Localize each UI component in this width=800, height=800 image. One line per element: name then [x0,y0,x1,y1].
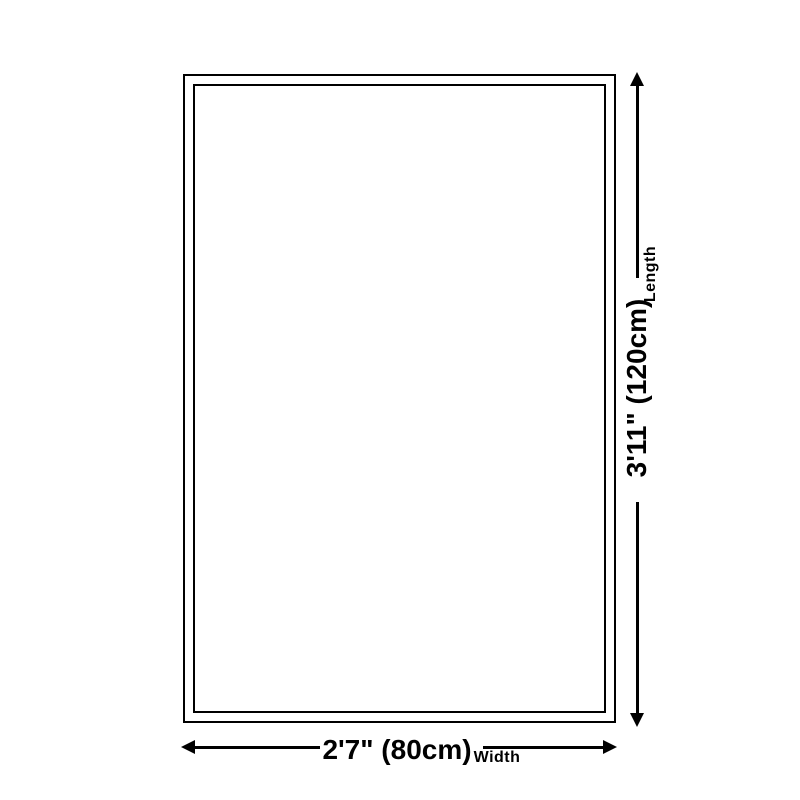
arrow-up-icon [630,72,644,86]
arrow-right-icon [603,740,617,754]
width-axis-label: Width [474,750,521,766]
width-value-label: 2'7" (80cm) [322,736,471,764]
length-value-label: 3'11" (120cm) [623,299,651,478]
arrow-left-icon [181,740,195,754]
size-diagram: Length 3'11" (120cm) 2'7" (80cm) Width [0,0,800,800]
length-dimension-line-top [636,85,639,278]
length-dimension-line-bottom [636,502,639,714]
arrow-down-icon [630,713,644,727]
length-axis-label: Length [643,246,659,302]
product-outline-inner [193,84,606,713]
width-dimension-line-left [194,746,320,749]
